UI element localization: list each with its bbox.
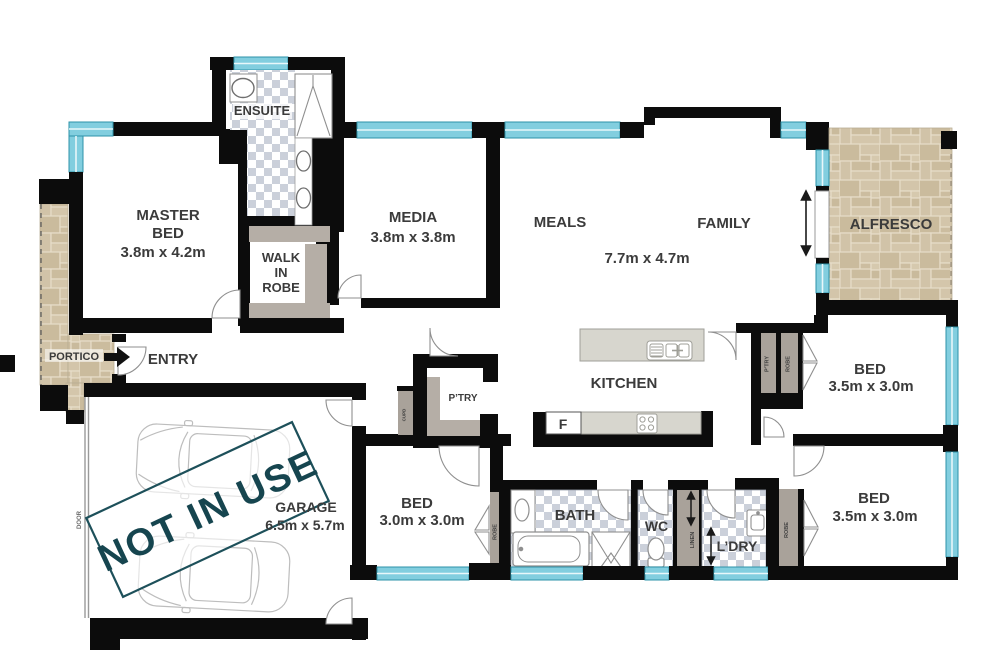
svg-text:GARAGE: GARAGE <box>275 499 336 515</box>
svg-text:BED: BED <box>854 361 886 378</box>
svg-text:F: F <box>559 416 568 432</box>
svg-text:P’TRY: P’TRY <box>765 356 771 372</box>
svg-text:ROBE: ROBE <box>493 524 499 540</box>
svg-text:KITCHEN: KITCHEN <box>591 375 658 392</box>
svg-text:ROBE: ROBE <box>786 356 792 372</box>
svg-text:BED: BED <box>401 495 433 512</box>
svg-text:BED: BED <box>152 225 184 242</box>
svg-text:WALK: WALK <box>262 250 301 265</box>
svg-text:ROBE: ROBE <box>784 522 790 538</box>
svg-text:LINEN: LINEN <box>690 532 696 549</box>
svg-text:6.5m x 5.7m: 6.5m x 5.7m <box>265 517 344 533</box>
svg-text:FAMILY: FAMILY <box>697 215 751 232</box>
svg-text:DOOR: DOOR <box>77 510 83 529</box>
svg-text:7.7m x 4.7m: 7.7m x 4.7m <box>604 250 689 267</box>
svg-text:3.5m x 3.0m: 3.5m x 3.0m <box>832 508 917 525</box>
svg-text:3.0m x 3.0m: 3.0m x 3.0m <box>379 512 464 529</box>
svg-text:BED: BED <box>858 490 890 507</box>
svg-text:WC: WC <box>645 518 668 534</box>
svg-text:ROBE: ROBE <box>262 280 300 295</box>
svg-text:3.8m x 3.8m: 3.8m x 3.8m <box>370 229 455 246</box>
svg-text:L’DRY: L’DRY <box>717 538 758 554</box>
svg-text:MEALS: MEALS <box>534 214 587 231</box>
svg-text:3.5m x 3.0m: 3.5m x 3.0m <box>828 378 913 395</box>
svg-text:CUPD: CUPD <box>402 408 407 422</box>
svg-text:P’TRY: P’TRY <box>448 393 477 404</box>
svg-text:IN: IN <box>275 265 288 280</box>
svg-text:ALFRESCO: ALFRESCO <box>850 216 933 233</box>
svg-text:MEDIA: MEDIA <box>389 209 438 226</box>
svg-text:PORTICO: PORTICO <box>49 351 100 363</box>
svg-text:3.8m x 4.2m: 3.8m x 4.2m <box>120 244 205 261</box>
svg-text:BATH: BATH <box>555 507 596 524</box>
svg-text:MASTER: MASTER <box>136 207 200 224</box>
svg-text:ENTRY: ENTRY <box>148 351 198 368</box>
svg-text:ENSUITE: ENSUITE <box>234 103 291 118</box>
